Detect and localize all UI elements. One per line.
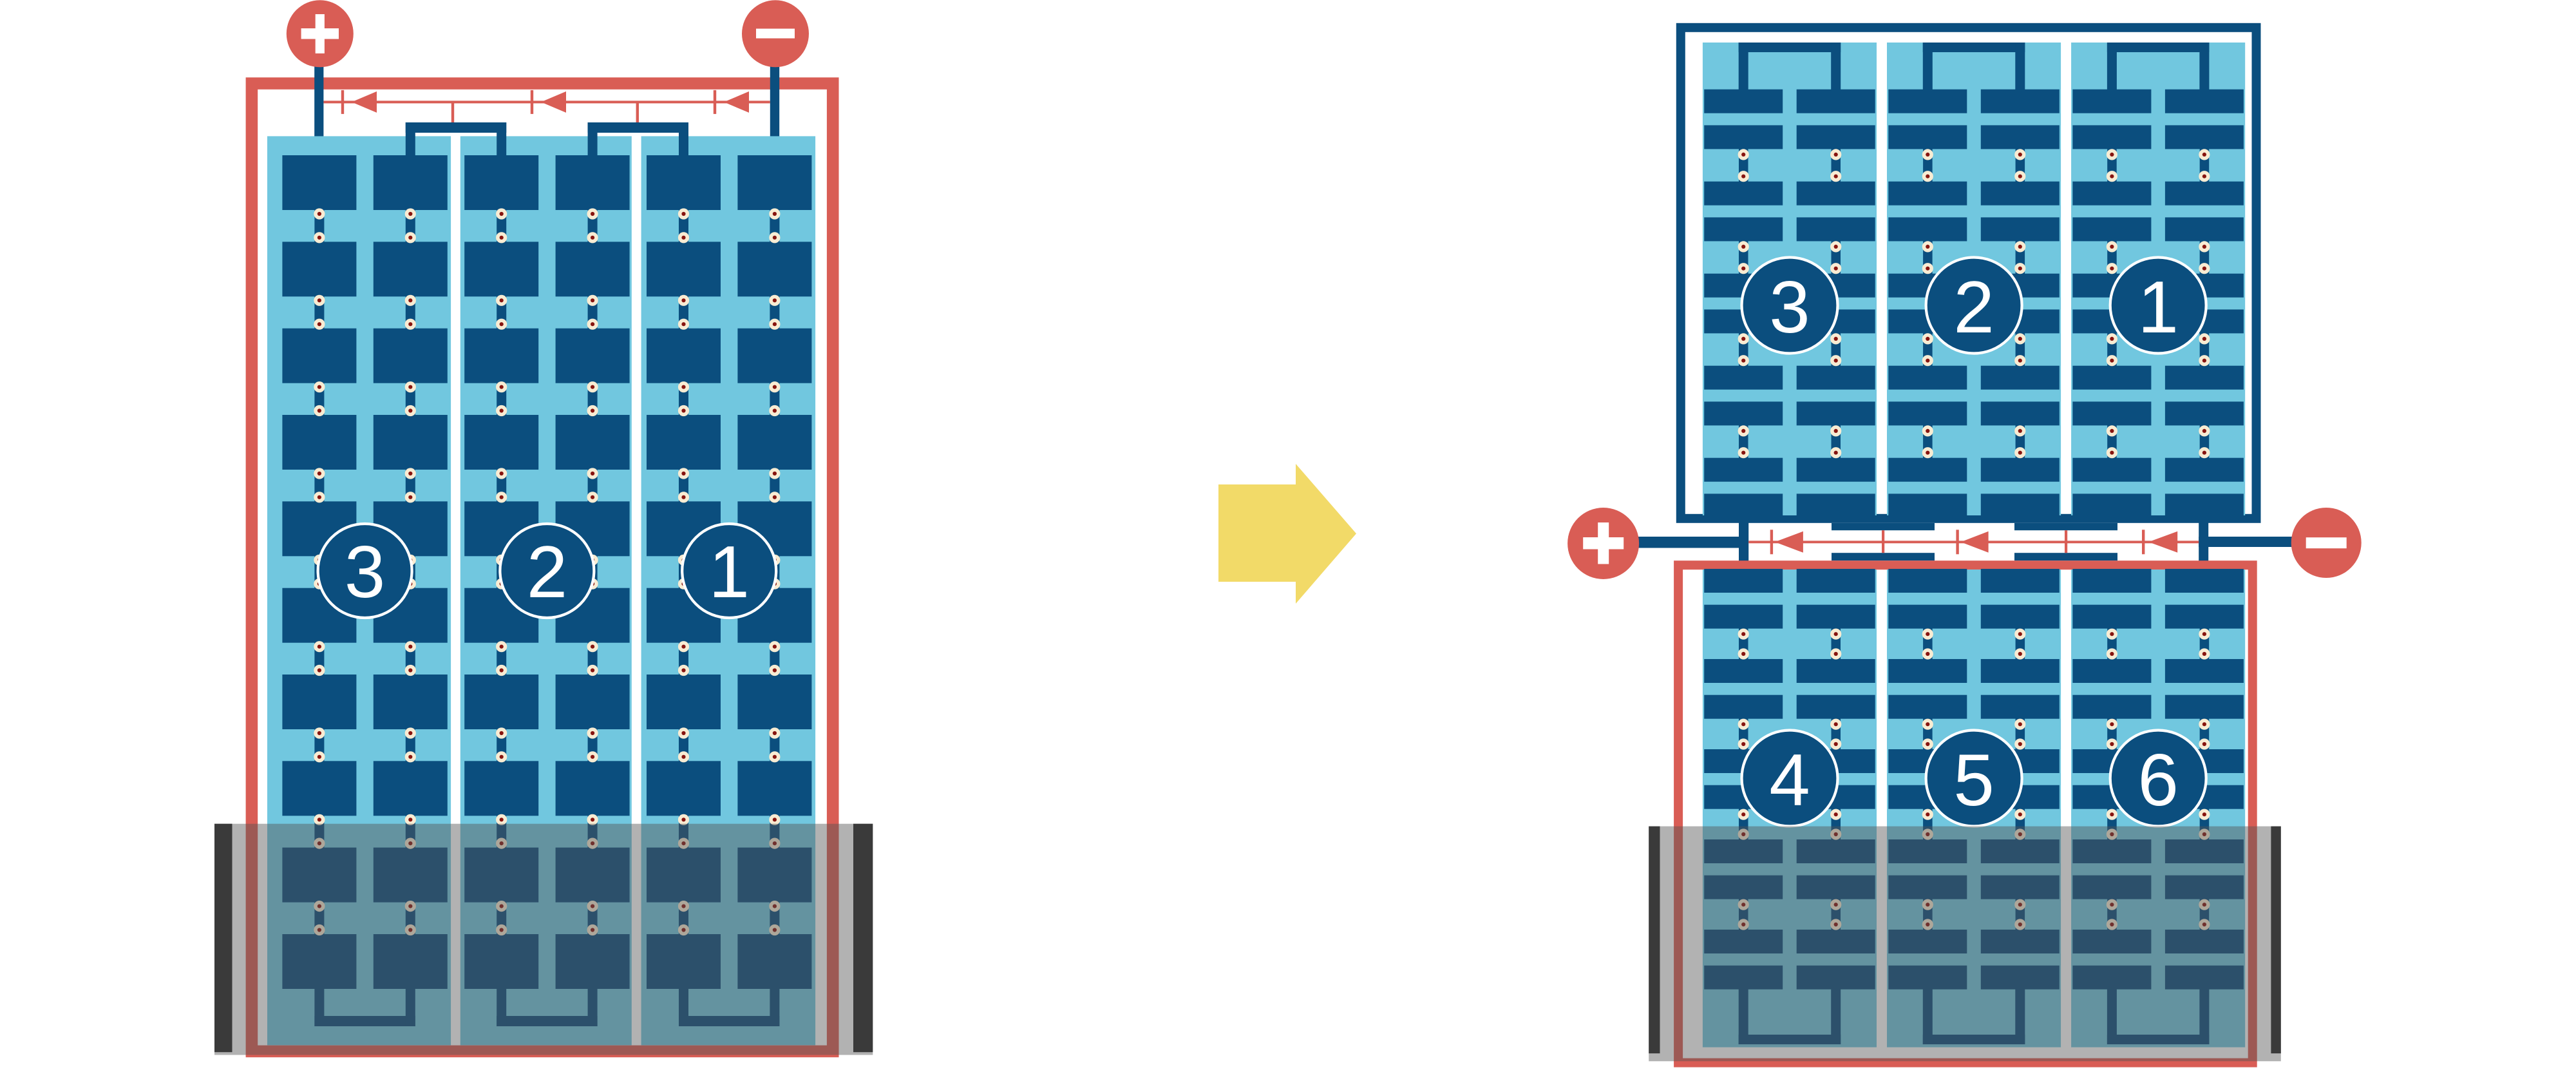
svg-text:1: 1 (2137, 267, 2178, 349)
svg-text:5: 5 (1953, 740, 1994, 821)
svg-text:2: 2 (527, 531, 567, 613)
svg-text:3: 3 (345, 531, 385, 613)
svg-text:4: 4 (1769, 740, 1810, 821)
svg-text:1: 1 (708, 531, 749, 613)
svg-text:3: 3 (1769, 267, 1810, 349)
svg-text:6: 6 (2137, 740, 2178, 821)
svg-text:2: 2 (1953, 267, 1994, 349)
